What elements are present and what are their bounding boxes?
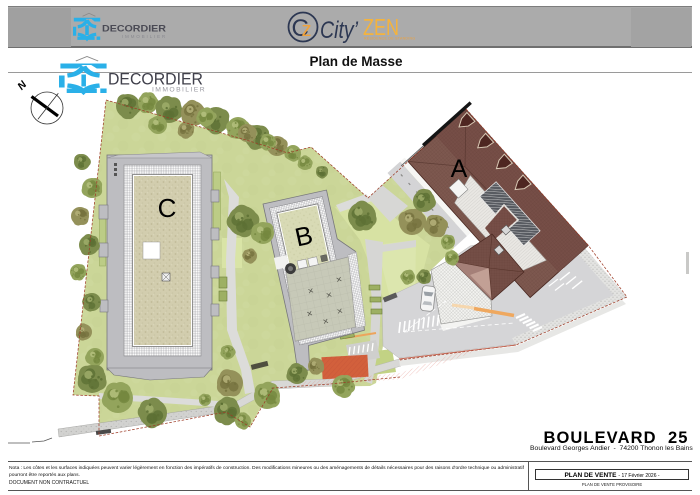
svg-text:N: N	[15, 79, 29, 93]
svg-text:IMMOBILIER: IMMOBILIER	[122, 34, 167, 39]
svg-text:A: A	[451, 155, 468, 183]
svg-text:RÉSIDENCE DE STANDING: RÉSIDENCE DE STANDING	[364, 36, 415, 41]
svg-text:DECORDIER: DECORDIER	[102, 24, 166, 34]
svg-text:IMMOBILIER: IMMOBILIER	[152, 87, 206, 94]
svg-text:C: C	[158, 193, 177, 223]
svg-text:z: z	[302, 19, 312, 41]
svg-text:City’: City’	[320, 17, 359, 44]
